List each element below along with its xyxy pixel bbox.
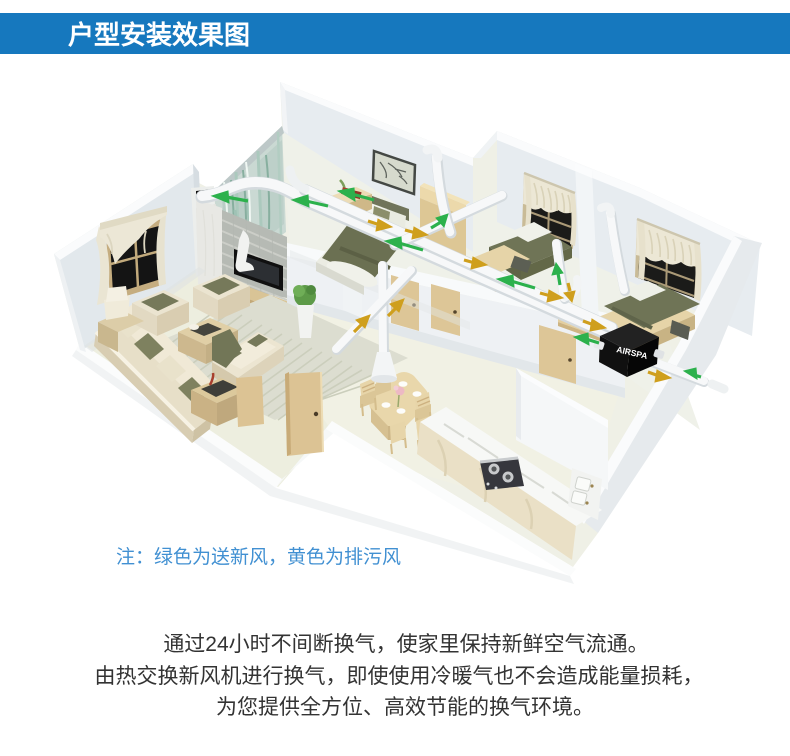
svg-text:户型安装效果图: 户型安装效果图 <box>68 20 250 50</box>
svg-text:为您提供全方位、高效节能的换气环境。: 为您提供全方位、高效节能的换气环境。 <box>216 696 594 719</box>
svg-text:由热交换新风机进行换气，即使使用冷暖气也不会造成能量损耗，: 由热交换新风机进行换气，即使使用冷暖气也不会造成能量损耗， <box>95 665 704 688</box>
svg-text:注：绿色为送新风，黄色为排污风: 注：绿色为送新风，黄色为排污风 <box>116 546 401 568</box>
svg-text:通过24小时不间断换气，使家里保持新鲜空气流通。: 通过24小时不间断换气，使家里保持新鲜空气流通。 <box>163 633 648 656</box>
